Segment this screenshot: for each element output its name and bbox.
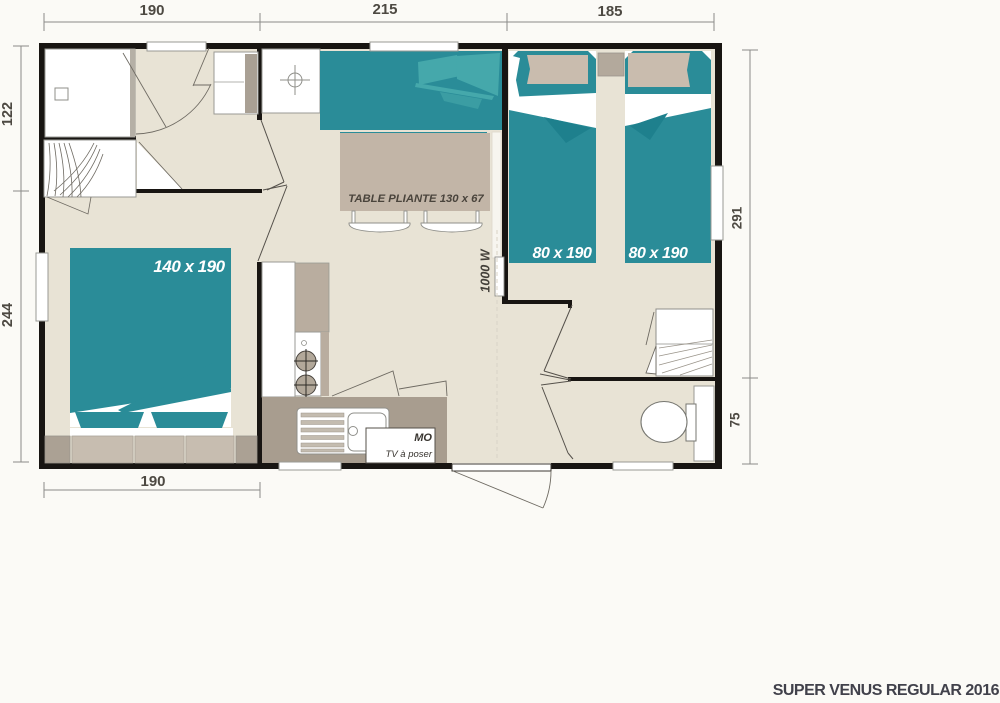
- svg-text:TV à poser: TV à poser: [386, 449, 433, 460]
- svg-text:215: 215: [372, 1, 397, 18]
- svg-text:190: 190: [140, 473, 165, 490]
- svg-text:75: 75: [728, 412, 743, 428]
- svg-text:190: 190: [139, 2, 164, 19]
- svg-text:122: 122: [0, 102, 16, 126]
- svg-text:MO: MO: [414, 432, 432, 444]
- svg-text:80 x 190: 80 x 190: [628, 245, 688, 262]
- svg-text:SUPER VENUS REGULAR 2016: SUPER VENUS REGULAR 2016: [773, 682, 1000, 699]
- svg-text:244: 244: [0, 303, 16, 327]
- svg-text:185: 185: [597, 3, 622, 20]
- svg-text:TABLE PLIANTE 130 x 67: TABLE PLIANTE 130 x 67: [348, 193, 484, 205]
- svg-text:291: 291: [730, 206, 745, 229]
- svg-text:140 x 190: 140 x 190: [153, 257, 225, 276]
- svg-text:1000 W: 1000 W: [478, 248, 492, 292]
- svg-text:80 x 190: 80 x 190: [532, 245, 592, 262]
